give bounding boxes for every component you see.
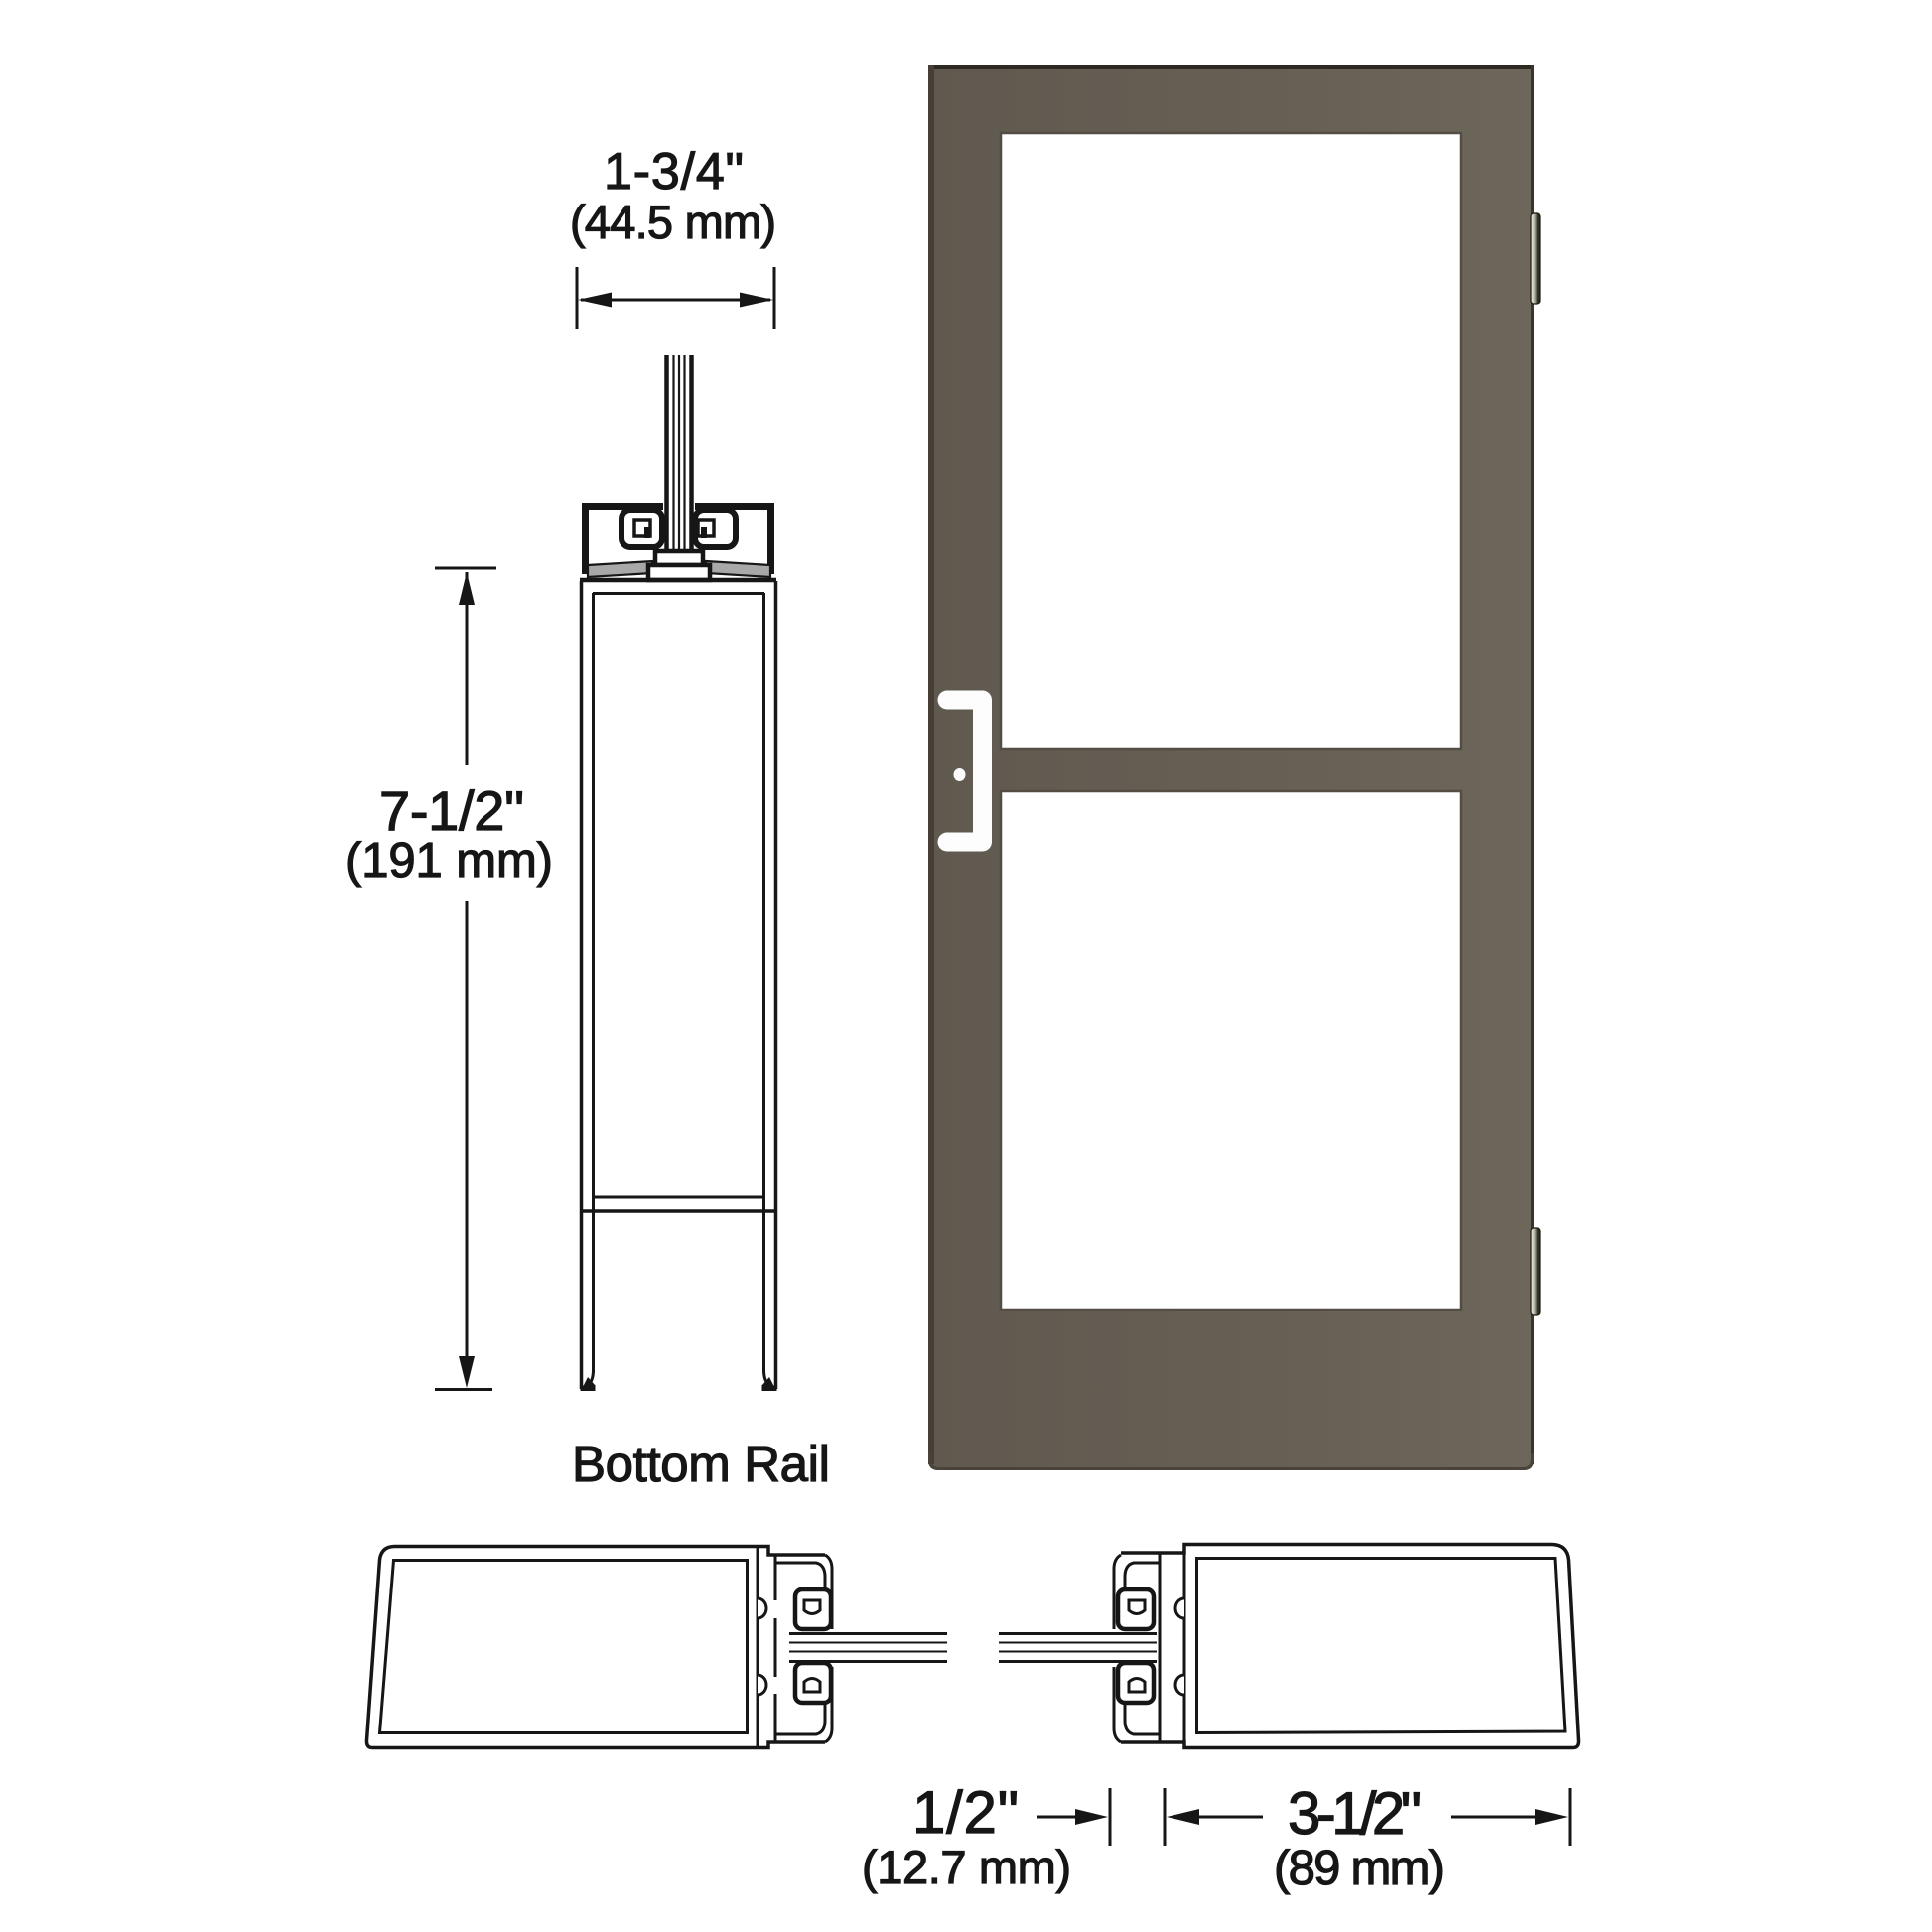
svg-text:(44.5 mm): (44.5 mm) <box>570 196 776 248</box>
svg-text:1-3/4": 1-3/4" <box>604 143 744 201</box>
svg-text:(12.7 mm): (12.7 mm) <box>862 1841 1071 1893</box>
svg-text:7-1/2": 7-1/2" <box>379 779 524 842</box>
svg-text:3-1/2": 3-1/2" <box>1288 1780 1422 1847</box>
svg-text:(191 mm): (191 mm) <box>345 834 553 888</box>
svg-text:1/2": 1/2" <box>912 1779 1019 1846</box>
svg-text:(89 mm): (89 mm) <box>1274 1842 1445 1895</box>
svg-text:Bottom Rail: Bottom Rail <box>572 1436 830 1492</box>
